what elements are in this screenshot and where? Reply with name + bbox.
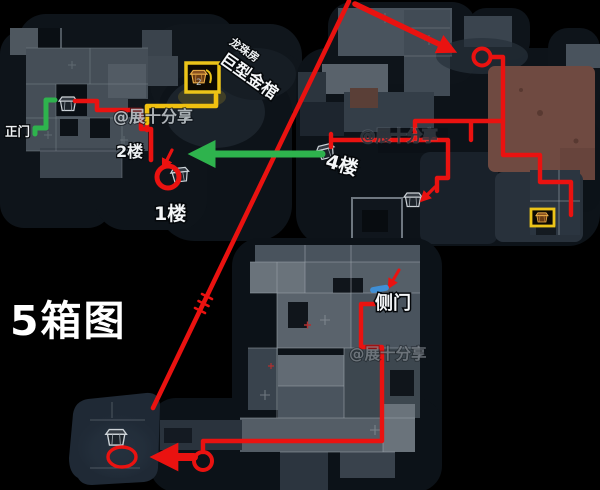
annotated-map: 2 正门 [0, 0, 600, 490]
chest-icon [404, 193, 422, 207]
watermark-bottom: @展十分享 [349, 344, 427, 363]
map-guide-screenshot: 2 正门 [0, 0, 600, 490]
watermark-center: @展十分享 [360, 126, 438, 145]
treasure-box-highlight-lower [531, 209, 554, 226]
label-side-door: 侧门 [375, 292, 411, 314]
page-title: 5箱图 [10, 297, 127, 345]
treasure-box-highlight-upper: 2 [178, 63, 226, 108]
label-floor-1: 1楼 [154, 202, 186, 225]
small-room-outline [352, 198, 402, 242]
chest-icon [106, 430, 127, 446]
box-count-badge: 2 [196, 78, 202, 88]
label-floor-2: 2楼 [116, 142, 143, 161]
label-main-gate: 正门 [5, 124, 30, 139]
watermark-top-left: @展十分享 [113, 107, 193, 126]
